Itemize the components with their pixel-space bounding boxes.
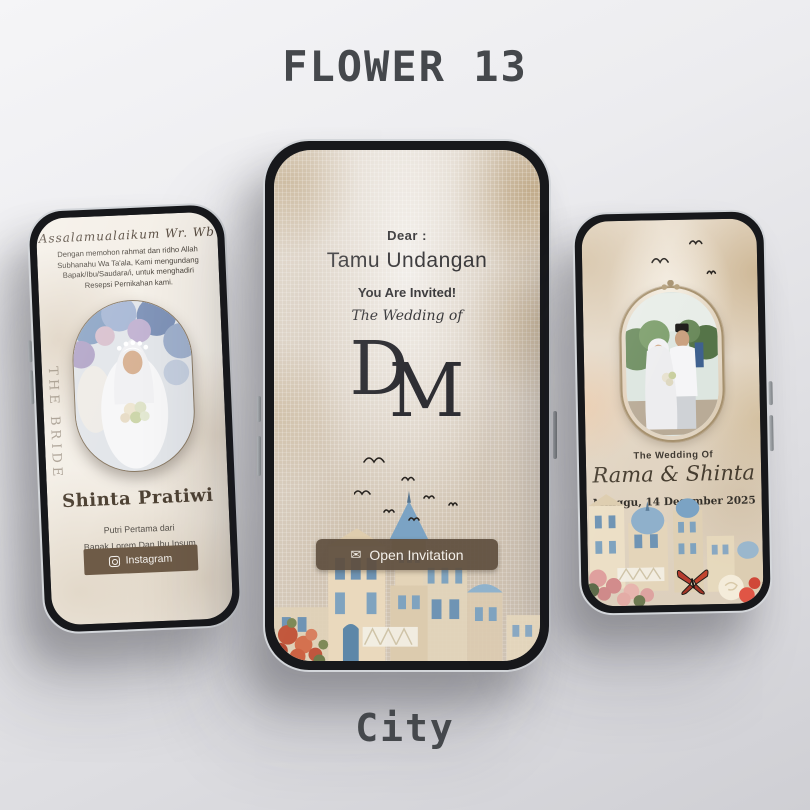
phone-mockup-cover: Dear : Tamu Undangan You Are Invited! Th… [263,139,551,672]
bride-photo [70,297,197,474]
birds-icon [632,233,723,285]
page-subtitle: City [0,706,810,750]
dear-label: Dear : [274,228,540,243]
ornate-photo-frame [618,285,725,443]
side-button [257,436,261,476]
wedding-of-label: The Wedding of [274,308,540,324]
open-invitation-button[interactable]: ✉ Open Invitation [316,539,498,570]
open-invitation-label: Open Invitation [369,547,463,563]
invited-label: You Are Invited! [274,285,540,300]
monogram-letter-m: M [389,348,465,434]
couple-monogram: DM [274,326,540,412]
guest-name: Tamu Undangan [274,249,540,273]
city-illustration [586,481,763,607]
page-title: FLOWER 13 [0,42,810,91]
greeting-text: Assalamualaikum Wr. Wb [36,224,217,246]
cover-screen: Dear : Tamu Undangan You Are Invited! Th… [274,150,540,661]
side-button [28,340,33,362]
phone-mockup-bride: Assalamualaikum Wr. Wb Dengan memohon ra… [26,202,243,635]
envelope-icon: ✉ [350,548,361,561]
side-button [257,396,261,422]
birds-icon [354,450,464,530]
instagram-button-label: Instagram [125,553,172,567]
bride-photo-illustration [71,298,196,473]
side-button [29,370,34,404]
couple-photo-illustration [624,291,719,437]
couple-photo [624,291,719,437]
the-bride-vertical-label: THE BRIDE [45,366,65,481]
couple-screen: The Wedding Of Rama & Shinta Minggu, 14 … [581,218,763,606]
bride-screen: Assalamualaikum Wr. Wb Dengan memohon ra… [36,211,234,625]
instagram-button[interactable]: Instagram [83,545,198,576]
side-button [768,381,772,405]
invitation-intro-text: Dengan memohon rahmat dan ridho Allah Su… [48,244,209,293]
side-button [769,415,774,451]
side-button [553,411,557,459]
phone-mockup-couple: The Wedding Of Rama & Shinta Minggu, 14 … [572,209,773,616]
instagram-icon [108,555,119,566]
bride-name: Shinta Pratiwi [47,484,229,513]
